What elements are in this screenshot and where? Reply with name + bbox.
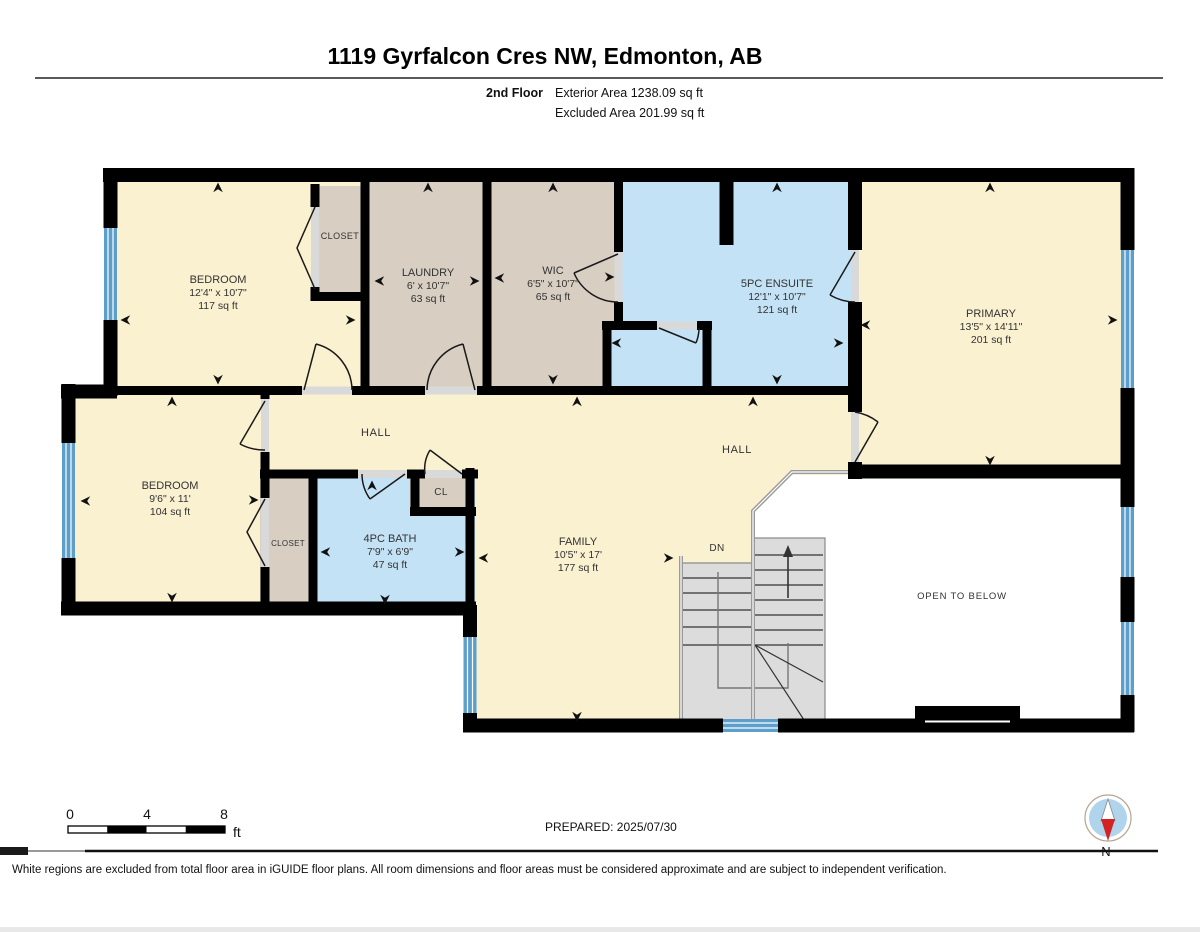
prepared-date: PREPARED: 2025/07/30 [545, 820, 677, 834]
wic-area-label: 65 sq ft [536, 291, 571, 303]
laundry-name: LAUNDRY [402, 267, 455, 279]
page-title: 1119 Gyrfalcon Cres NW, Edmonton, AB [328, 43, 763, 69]
ensuite-area-label: 121 sq ft [757, 304, 797, 316]
hall2-label: HALL [722, 444, 752, 456]
primary-dims: 13'5" x 14'11" [960, 321, 1023, 333]
bath-dims: 7'9" x 6'9" [367, 546, 413, 558]
wic-dims: 6'5" x 10'7" [527, 278, 579, 290]
excluded-area: Excluded Area 201.99 sq ft [555, 106, 705, 120]
window [464, 637, 477, 713]
family-area-label: 177 sq ft [558, 562, 598, 574]
floor-label: 2nd Floor [486, 86, 543, 100]
room-fills [68, 168, 1128, 728]
floorplan-svg: 1119 Gyrfalcon Cres NW, Edmonton, AB 2nd… [0, 0, 1200, 927]
bedroom2-name: BEDROOM [142, 480, 199, 492]
scale-bar: 0 4 8 ft [66, 806, 241, 840]
header: 1119 Gyrfalcon Cres NW, Edmonton, AB 2nd… [35, 43, 1163, 120]
window [1121, 250, 1134, 388]
bath-name: 4PC BATH [364, 533, 417, 545]
compass-icon [1085, 795, 1131, 841]
scale-tick-8: 8 [220, 806, 228, 822]
floorplan-sheet: 1119 Gyrfalcon Cres NW, Edmonton, AB 2nd… [0, 0, 1200, 927]
hall1-label: HALL [361, 427, 391, 439]
window [723, 719, 778, 732]
window-seat [915, 706, 1020, 732]
ensuite-dims: 12'1" x 10'7" [748, 291, 806, 303]
dn-label: DN [709, 543, 724, 554]
closet2-label: CLOSET [271, 539, 305, 548]
bedroom1-area-label: 117 sq ft [198, 300, 238, 312]
open-to-below-label: OPEN TO BELOW [917, 591, 1007, 602]
bedroom1-dims: 12'4" x 10'7" [189, 287, 247, 299]
laundry-area-label: 63 sq ft [411, 293, 446, 305]
footer: PREPARED: 2025/07/30 N White regions are… [0, 795, 1158, 876]
primary-area-label: 201 sq ft [971, 334, 1011, 346]
laundry-dims: 6' x 10'7" [407, 280, 449, 292]
wic-name: WIC [542, 265, 563, 277]
ensuite-name: 5PC ENSUITE [741, 278, 813, 290]
bedroom2-area-label: 104 sq ft [150, 506, 190, 518]
scale-unit: ft [233, 824, 241, 840]
bedroom1-name: BEDROOM [190, 274, 247, 286]
family-dims: 10'5" x 17' [554, 549, 602, 561]
bedroom2-dims: 9'6" x 11' [149, 493, 190, 505]
exterior-area: Exterior Area 1238.09 sq ft [555, 86, 704, 100]
window [1121, 507, 1134, 577]
footer-rule [0, 847, 1158, 855]
wc-area [605, 325, 700, 390]
scale-tick-0: 0 [66, 806, 74, 822]
disclaimer-text: White regions are excluded from total fl… [12, 864, 947, 876]
window [62, 443, 75, 558]
window [104, 228, 117, 320]
family-name: FAMILY [559, 536, 598, 548]
bath-area-label: 47 sq ft [373, 559, 408, 571]
primary-name: PRIMARY [966, 308, 1017, 320]
cl-label: CL [434, 487, 448, 498]
window [1121, 622, 1134, 695]
closet1-label: CLOSET [321, 231, 360, 241]
hall-area [265, 388, 852, 475]
scale-tick-4: 4 [143, 806, 151, 822]
